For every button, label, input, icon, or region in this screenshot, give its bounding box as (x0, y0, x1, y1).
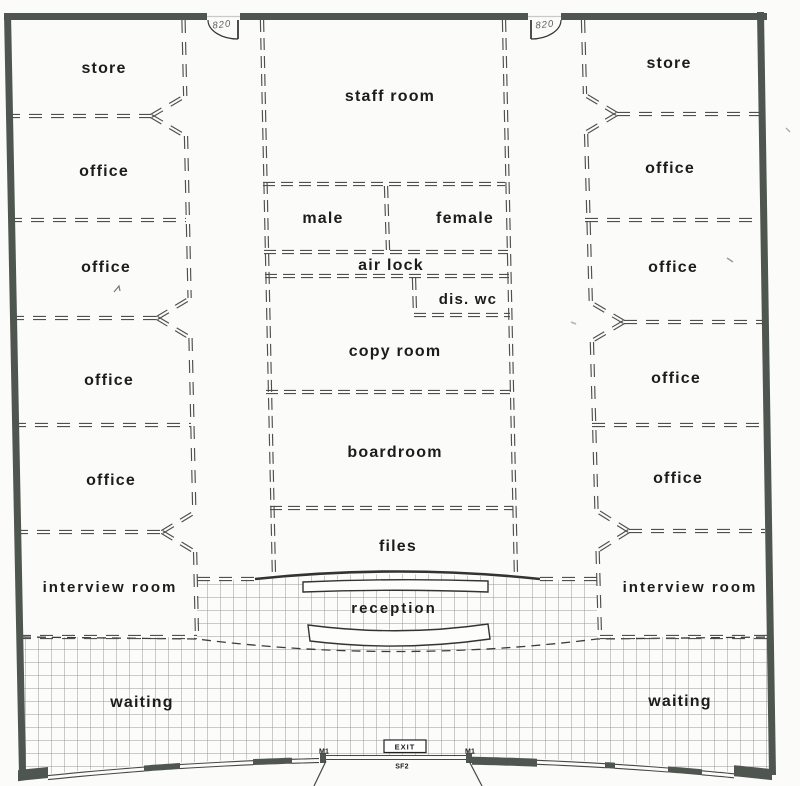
svg-text:office: office (653, 470, 703, 487)
svg-text:820: 820 (535, 19, 555, 32)
svg-text:EXIT: EXIT (395, 743, 416, 752)
svg-text:M1: M1 (465, 749, 475, 756)
svg-text:copy room: copy room (349, 343, 442, 360)
svg-text:820: 820 (212, 19, 232, 32)
svg-text:staff room: staff room (345, 88, 435, 105)
svg-text:male: male (302, 210, 343, 227)
svg-text:office: office (86, 472, 136, 489)
svg-text:office: office (81, 259, 131, 276)
svg-text:dis. wc: dis. wc (439, 291, 497, 308)
svg-text:M1: M1 (319, 749, 329, 756)
svg-text:reception: reception (351, 600, 437, 617)
svg-text:female: female (436, 210, 494, 227)
svg-text:office: office (79, 163, 129, 180)
svg-text:office: office (648, 259, 698, 276)
svg-text:interview room: interview room (623, 579, 758, 596)
svg-text:waiting: waiting (647, 693, 712, 710)
svg-text:boardroom: boardroom (347, 444, 442, 461)
svg-text:office: office (84, 372, 134, 389)
svg-text:air lock: air lock (358, 257, 424, 274)
svg-text:store: store (81, 60, 126, 77)
svg-text:interview room: interview room (43, 579, 178, 596)
svg-text:office: office (645, 160, 695, 177)
svg-text:SF2: SF2 (395, 764, 408, 771)
svg-text:office: office (651, 370, 701, 387)
svg-text:waiting: waiting (109, 694, 174, 711)
svg-text:files: files (379, 538, 417, 555)
svg-text:store: store (646, 55, 691, 72)
